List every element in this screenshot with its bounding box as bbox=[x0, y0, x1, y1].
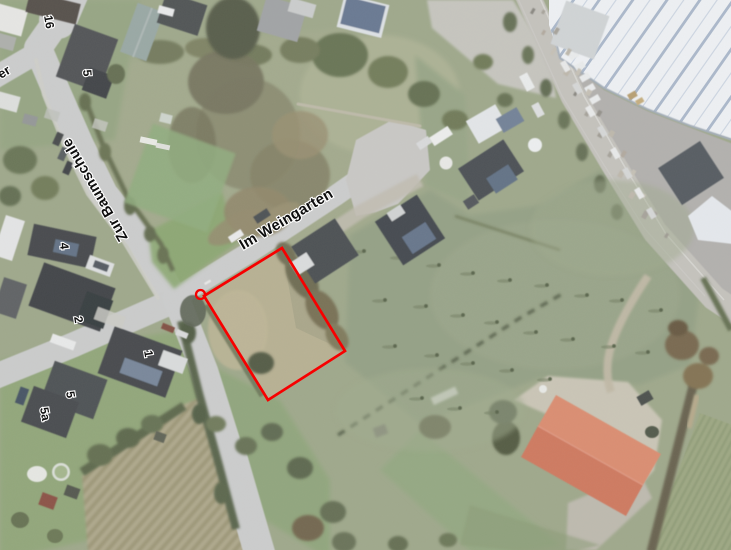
svg-text:16: 16 bbox=[41, 14, 57, 30]
svg-text:5a: 5a bbox=[37, 406, 53, 422]
